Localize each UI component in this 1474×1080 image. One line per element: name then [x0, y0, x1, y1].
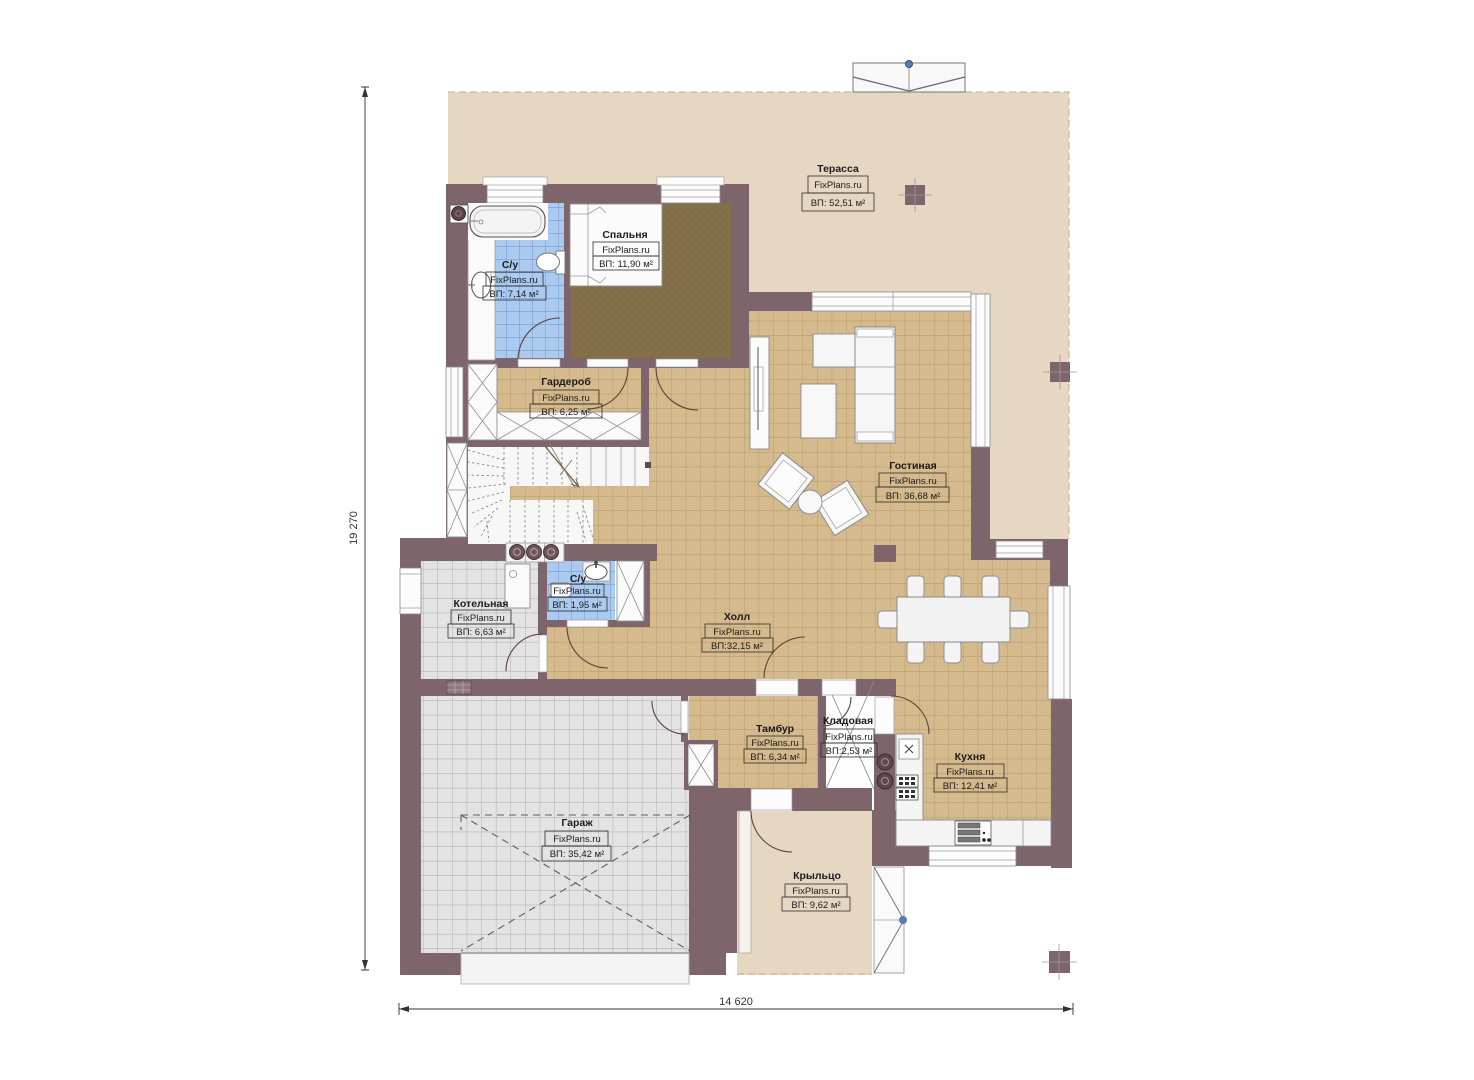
svg-text:Кухня: Кухня [955, 751, 986, 763]
svg-text:ВП: 12,41 м²: ВП: 12,41 м² [943, 781, 998, 792]
svg-text:Спальня: Спальня [602, 229, 647, 241]
svg-text:FixPlans.ru: FixPlans.ru [825, 732, 873, 743]
svg-text:Гардероб: Гардероб [541, 376, 591, 388]
svg-text:ВП: 9,62 м²: ВП: 9,62 м² [791, 900, 840, 911]
svg-text:FixPlans.ru: FixPlans.ru [457, 613, 505, 624]
svg-text:С/у: С/у [570, 573, 587, 585]
svg-text:ВП: 1,95 м²: ВП: 1,95 м² [552, 600, 601, 611]
svg-text:Терасса: Терасса [817, 163, 859, 175]
svg-text:FixPlans.ru: FixPlans.ru [792, 886, 840, 897]
svg-text:Кладовая: Кладовая [823, 715, 873, 727]
svg-text:FixPlans.ru: FixPlans.ru [814, 180, 862, 191]
svg-text:ВП: 11,90 м²: ВП: 11,90 м² [599, 259, 653, 270]
svg-text:FixPlans.ru: FixPlans.ru [553, 586, 601, 597]
svg-text:ВП: 36,68 м²: ВП: 36,68 м² [886, 491, 941, 502]
svg-text:Тамбур: Тамбур [756, 723, 794, 735]
svg-text:19 270: 19 270 [348, 511, 360, 545]
svg-text:FixPlans.ru: FixPlans.ru [946, 767, 994, 778]
svg-text:FixPlans.ru: FixPlans.ru [553, 834, 601, 845]
svg-text:FixPlans.ru: FixPlans.ru [751, 738, 799, 749]
svg-text:ВП: 35,42 м²: ВП: 35,42 м² [550, 849, 605, 860]
svg-text:ВП: 6,63 м²: ВП: 6,63 м² [456, 627, 505, 638]
svg-text:Крыльцо: Крыльцо [793, 870, 841, 882]
svg-text:ВП: 7,14 м²: ВП: 7,14 м² [489, 289, 538, 300]
svg-text:С/у: С/у [502, 259, 519, 271]
svg-text:ВП:32,15 м²: ВП:32,15 м² [711, 641, 763, 652]
svg-text:FixPlans.ru: FixPlans.ru [889, 476, 937, 487]
svg-text:Гараж: Гараж [561, 817, 593, 829]
svg-text:FixPlans.ru: FixPlans.ru [713, 627, 761, 638]
svg-text:ВП:2,53 м²: ВП:2,53 м² [826, 746, 873, 757]
svg-text:FixPlans.ru: FixPlans.ru [602, 245, 650, 256]
svg-text:Холл: Холл [724, 611, 750, 623]
svg-text:FixPlans.ru: FixPlans.ru [542, 393, 590, 404]
svg-text:Котельная: Котельная [454, 598, 509, 610]
svg-text:ВП: 6,34 м²: ВП: 6,34 м² [750, 752, 799, 763]
svg-text:ВП: 6,25 м²: ВП: 6,25 м² [541, 407, 590, 418]
svg-text:14 620: 14 620 [719, 996, 753, 1008]
svg-text:ВП: 52,51 м²: ВП: 52,51 м² [811, 198, 866, 209]
svg-text:Гостиная: Гостиная [889, 460, 936, 472]
svg-text:FixPlans.ru: FixPlans.ru [490, 275, 538, 286]
